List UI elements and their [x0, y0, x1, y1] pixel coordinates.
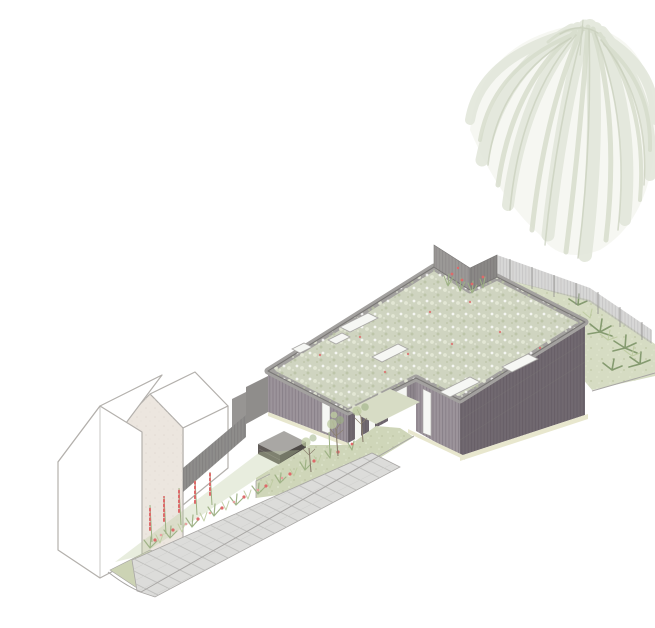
axonometric-illustration [0, 0, 655, 628]
illustration-page [0, 0, 655, 628]
window-front [423, 389, 431, 436]
weeping-willow-tree [470, 20, 655, 258]
garden-wall-upper [246, 376, 268, 424]
